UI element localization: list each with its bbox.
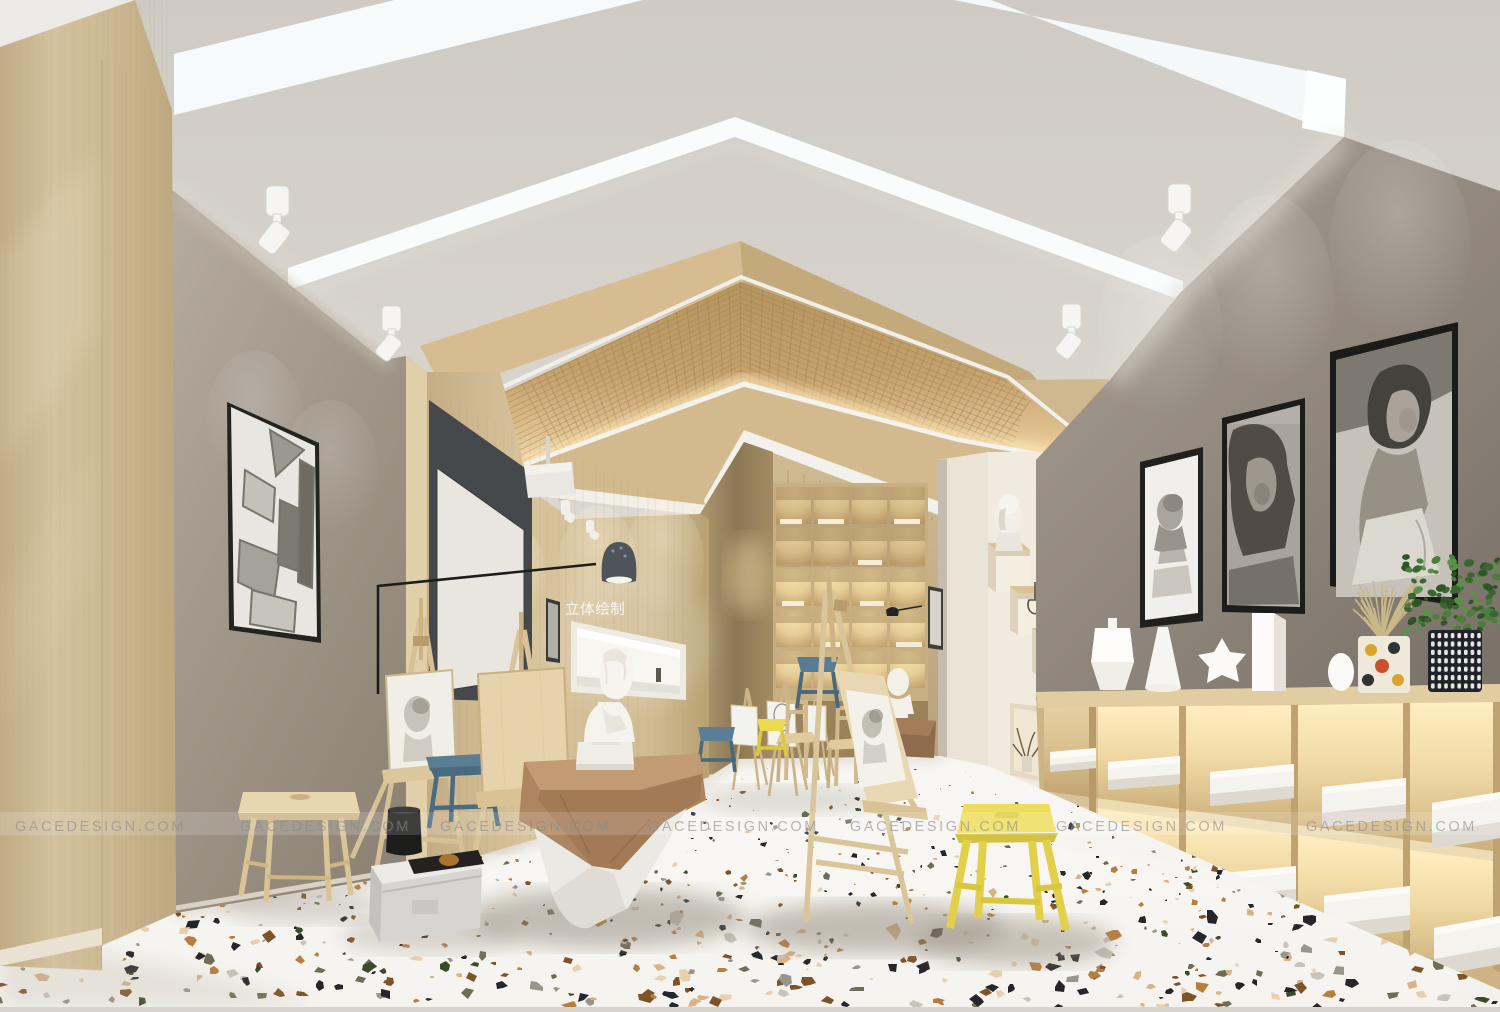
svg-text:GACEDESIGN.COM: GACEDESIGN.COM — [240, 819, 411, 835]
svg-text:GACEDESIGN.COM: GACEDESIGN.COM — [850, 819, 1021, 835]
svg-text:立体绘制: 立体绘制 — [565, 601, 625, 618]
svg-text:GACEDESIGN.COM: GACEDESIGN.COM — [1056, 819, 1227, 835]
svg-text:GACEDESIGN.COM: GACEDESIGN.COM — [15, 819, 186, 835]
svg-text:GACEDESIGN.COM: GACEDESIGN.COM — [1306, 819, 1477, 835]
svg-text:GACEDESIGN.COM: GACEDESIGN.COM — [440, 819, 611, 835]
svg-text:GACEDESIGN.COM: GACEDESIGN.COM — [648, 819, 819, 835]
